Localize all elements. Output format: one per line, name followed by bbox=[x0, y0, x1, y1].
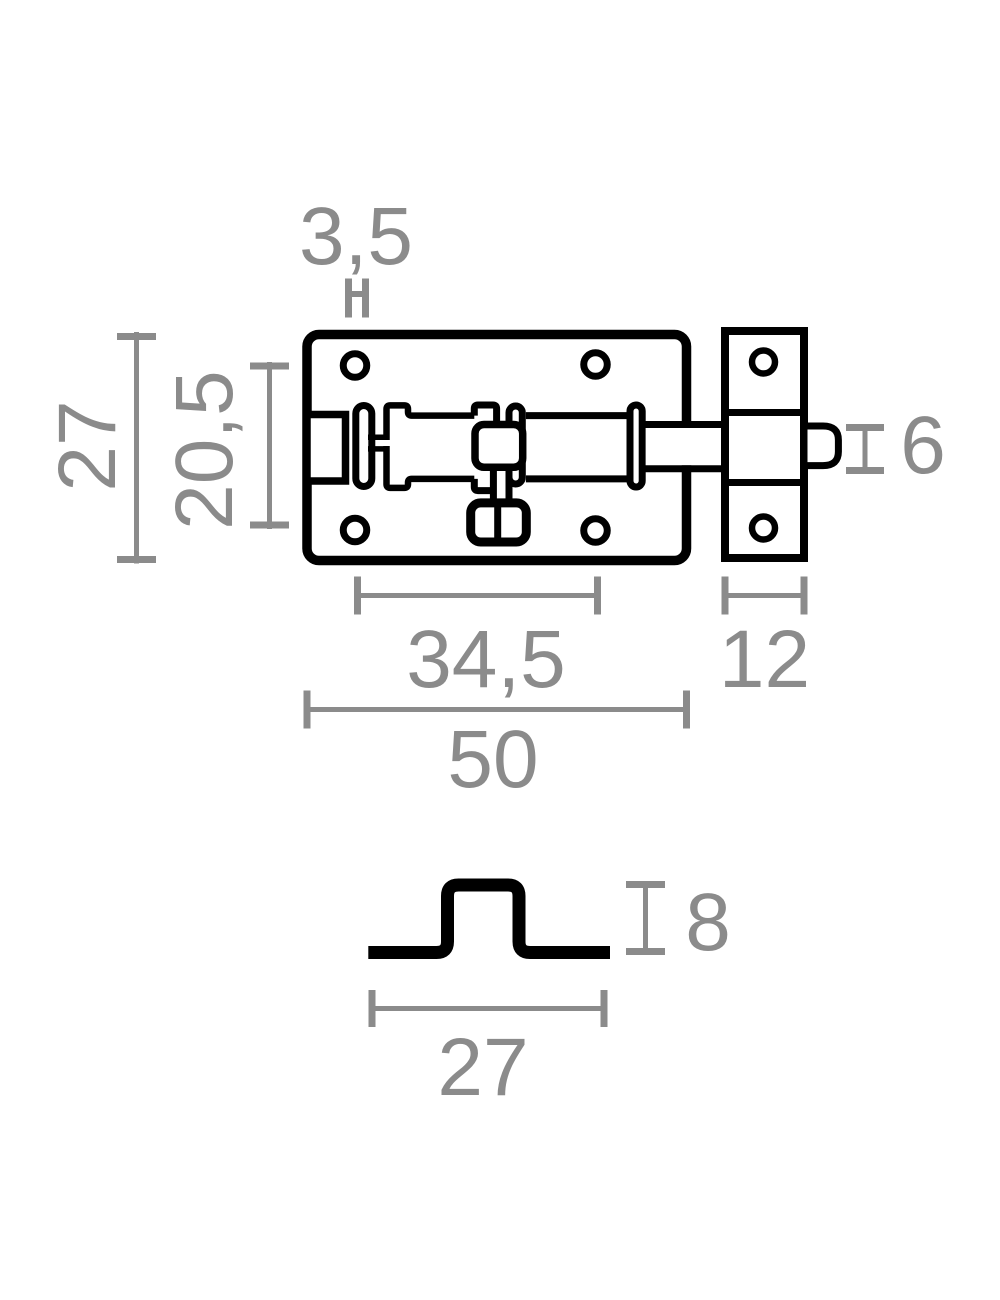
svg-text:3,5: 3,5 bbox=[299, 191, 413, 282]
svg-text:12: 12 bbox=[719, 614, 810, 705]
svg-text:27: 27 bbox=[437, 1022, 528, 1113]
svg-text:34,5: 34,5 bbox=[406, 614, 566, 705]
svg-text:6: 6 bbox=[900, 400, 946, 491]
svg-text:50: 50 bbox=[447, 714, 538, 805]
svg-text:27: 27 bbox=[42, 400, 133, 491]
svg-text:20,5: 20,5 bbox=[159, 370, 250, 530]
svg-text:8: 8 bbox=[685, 877, 731, 968]
